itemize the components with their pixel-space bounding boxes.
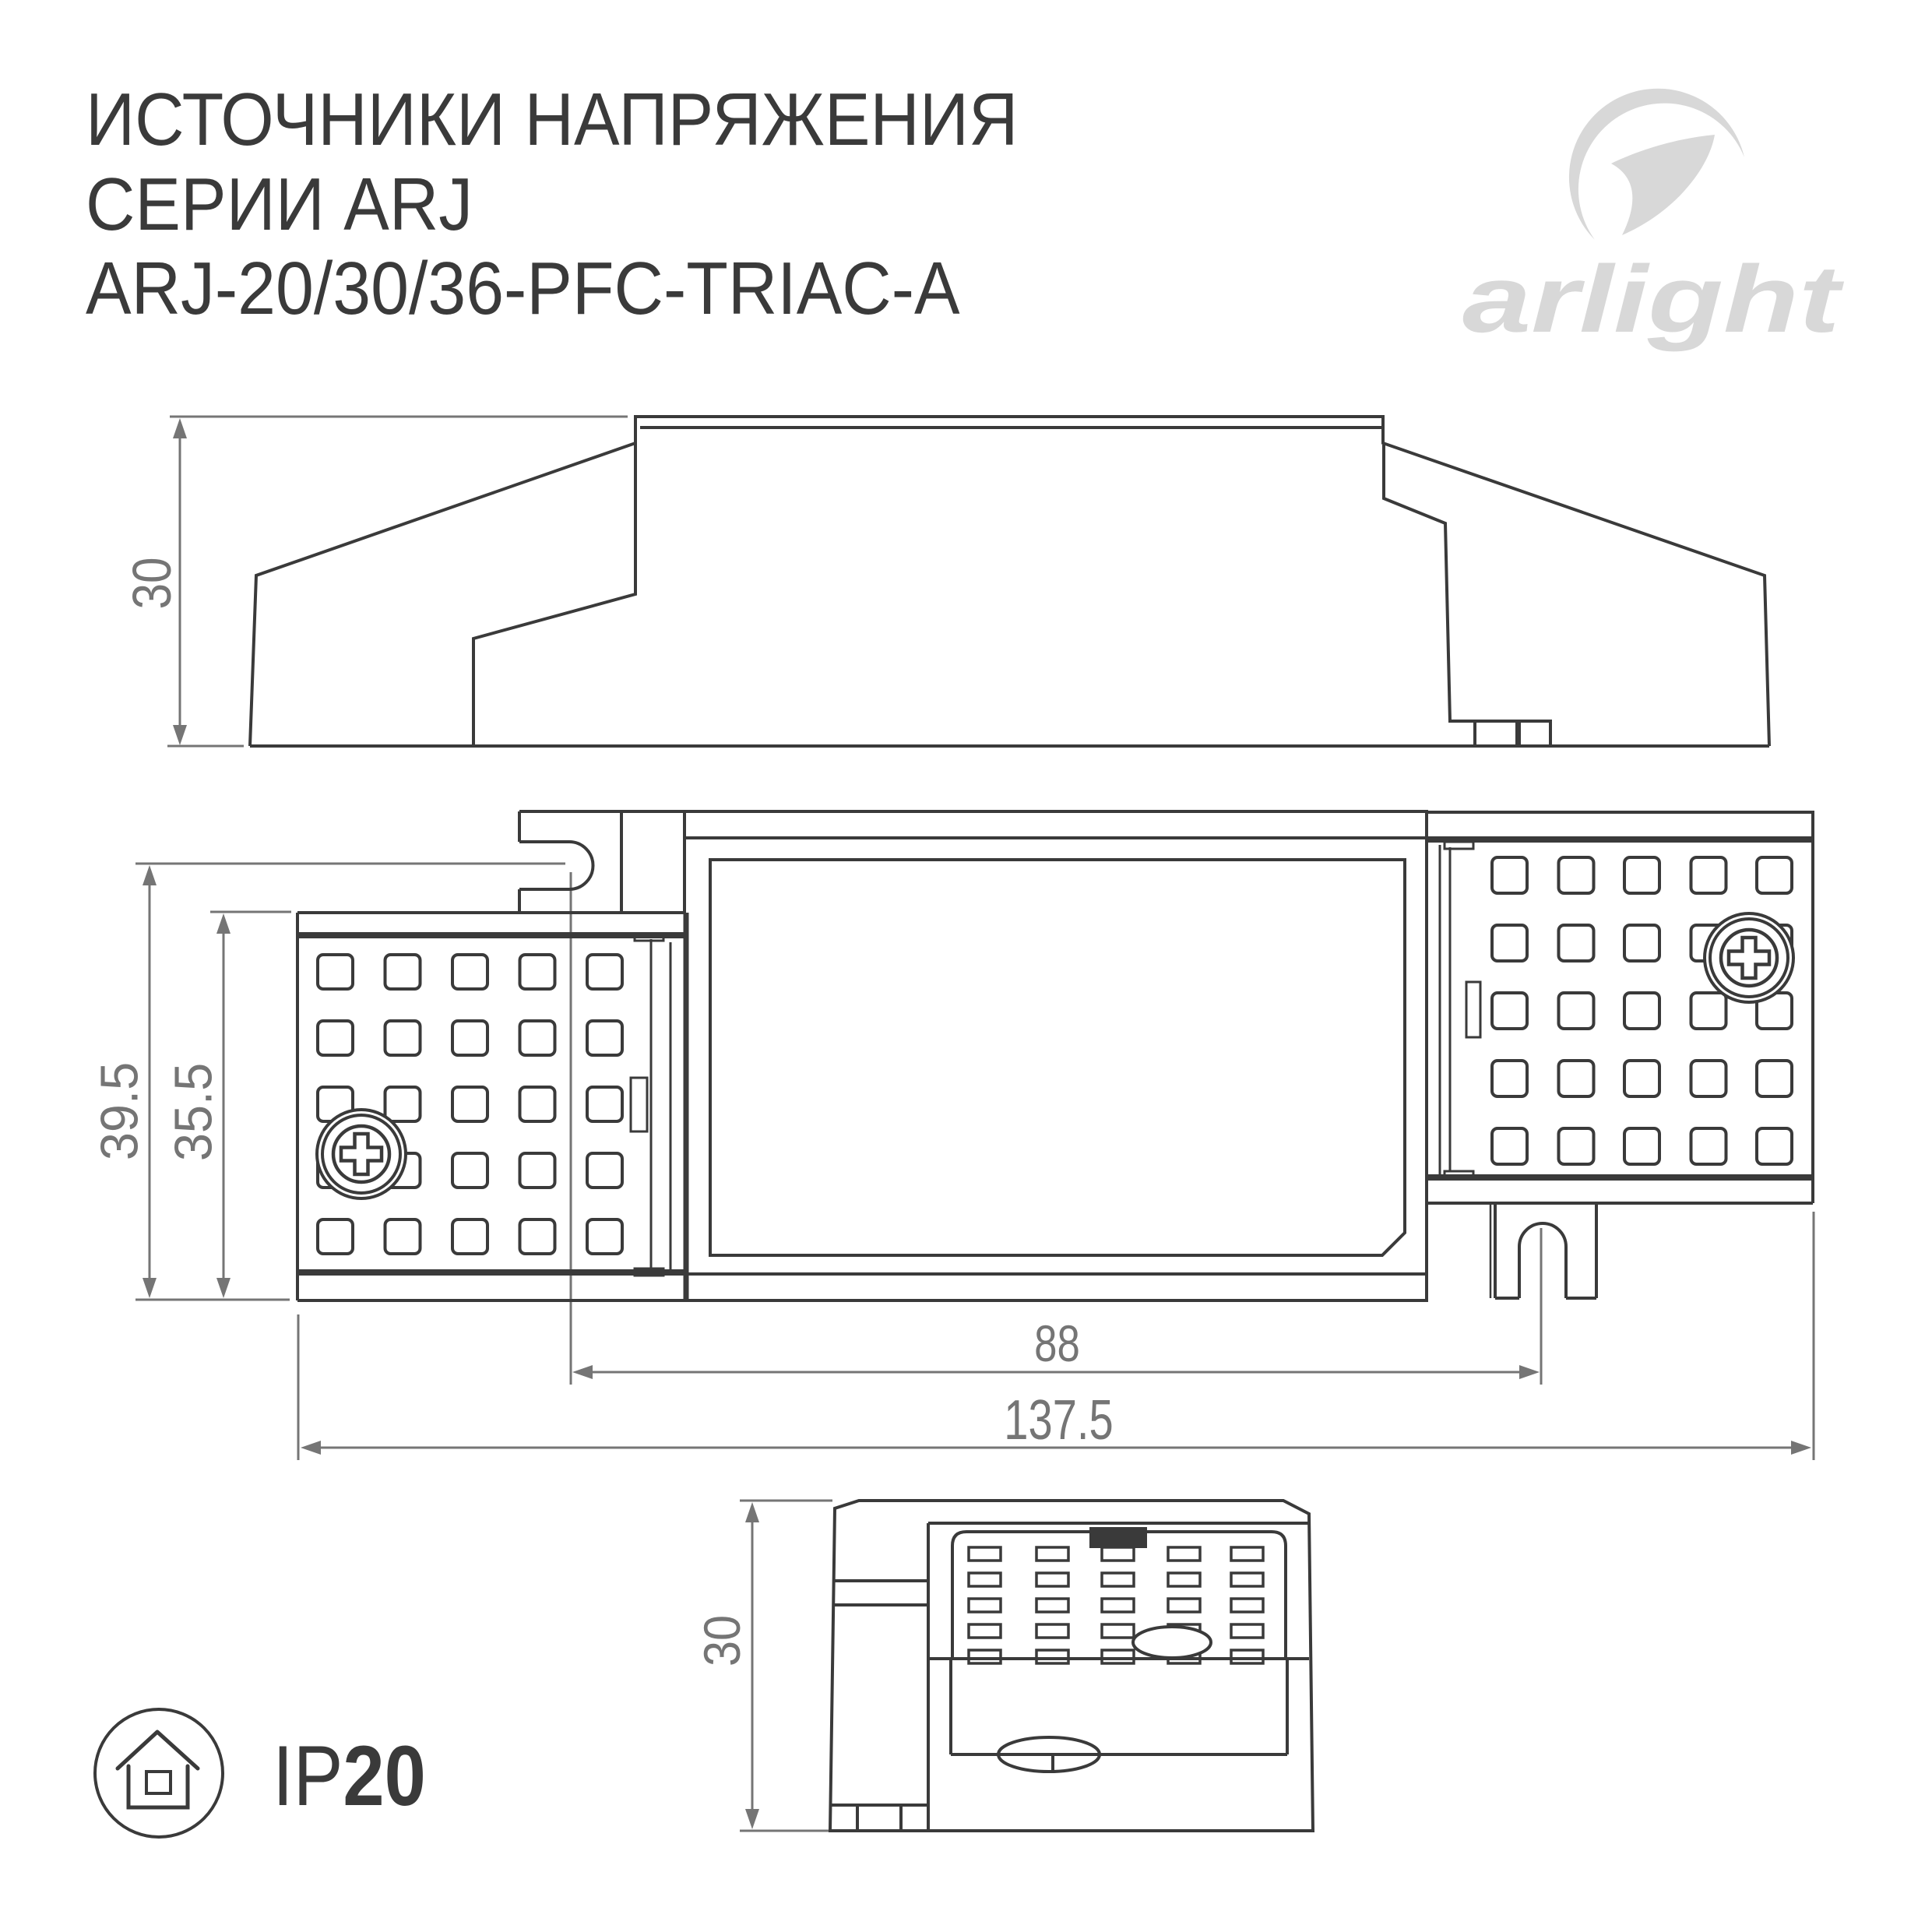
svg-text:30: 30 [694,1615,751,1666]
svg-text:arlight: arlight [1462,246,1844,352]
svg-text:IP20: IP20 [273,1728,426,1824]
svg-text:СЕРИИ ARJ: СЕРИИ ARJ [86,163,473,245]
svg-text:35.5: 35.5 [164,1063,223,1161]
svg-text:30: 30 [121,558,182,610]
svg-text:39.5: 39.5 [90,1062,150,1160]
svg-text:ИСТОЧНИКИ НАПРЯЖЕНИЯ: ИСТОЧНИКИ НАПРЯЖЕНИЯ [86,78,1018,160]
svg-text:ARJ-20/30/36-PFC-TRIAC-A: ARJ-20/30/36-PFC-TRIAC-A [86,247,960,329]
svg-text:88: 88 [1034,1314,1080,1372]
svg-text:137.5: 137.5 [1004,1388,1113,1451]
